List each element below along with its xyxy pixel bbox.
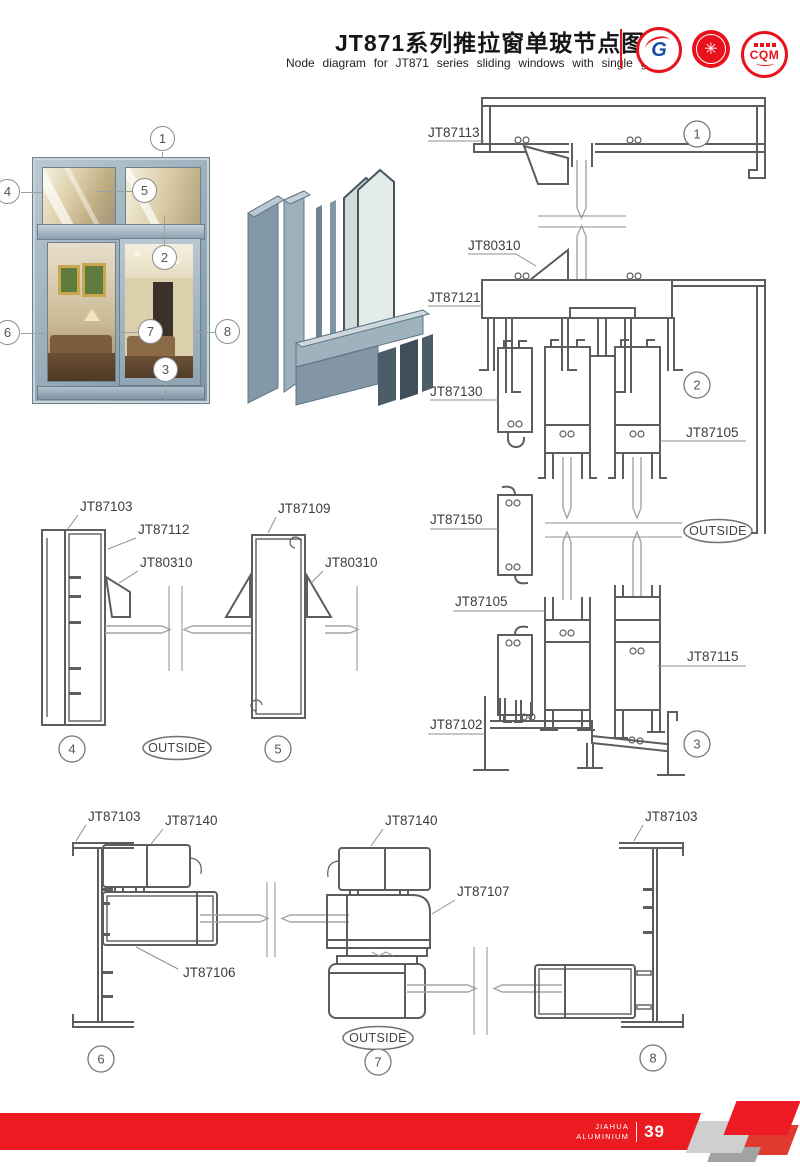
callout-line-8	[196, 332, 215, 333]
profile-jt87115	[611, 586, 664, 738]
node-number-5: 5	[274, 742, 281, 757]
callout-line-6	[21, 333, 48, 334]
jiahua-g-logo-icon: G	[636, 27, 682, 73]
callout-6: 6	[0, 320, 20, 345]
glazing-fin	[330, 200, 336, 347]
gasket-wedge-jt80310	[530, 250, 568, 280]
profile-jt87103-right-jamb	[620, 843, 683, 1027]
outside-label: OUTSIDE	[349, 1031, 407, 1045]
interlock-jt87107	[337, 948, 427, 964]
callout-line-5	[96, 191, 132, 192]
ceiling-light	[135, 252, 139, 256]
label-jt87121: JT87121	[428, 290, 481, 305]
callout-5: 5	[132, 178, 157, 203]
glass-pane-section1	[577, 160, 586, 280]
label-jt87140-a: JT87140	[165, 813, 218, 828]
profile-jt87113	[474, 98, 765, 178]
glass-pane-horizontal	[105, 626, 358, 633]
footer-brand-block: JIAHUA ALUMINIUM 39	[576, 1122, 665, 1142]
page-title: JT871系列推拉窗单玻节点图	[335, 24, 613, 58]
gasket-wedge-left	[226, 576, 250, 617]
profile-3d-render	[238, 148, 433, 423]
label-jt87140-b: JT87140	[385, 813, 438, 828]
profile-jt87150	[498, 487, 532, 584]
horizontal-section-45-diagram: JT87103 JT87112 JT80310 JT87109 JT80310 …	[20, 480, 420, 770]
label-jt87107: JT87107	[457, 884, 510, 899]
label-jt87130: JT87130	[430, 384, 483, 399]
profile-jt87109-mullion	[251, 535, 305, 718]
glazing-fin	[316, 205, 322, 351]
profile-jt87106-sash	[103, 892, 217, 945]
leader-jt87103-a	[76, 825, 86, 841]
callout-3: 3	[153, 357, 178, 382]
profile-lower-meeting-stile	[329, 964, 425, 1018]
callout-line-1	[162, 152, 163, 158]
picture-frame	[58, 265, 80, 295]
picture-frame	[82, 263, 106, 297]
outside-label: OUTSIDE	[148, 741, 206, 755]
label-jt87103: JT87103	[80, 499, 133, 514]
leader-jt87103	[67, 515, 78, 530]
footer-brand: JIAHUA ALUMINIUM	[576, 1122, 629, 1141]
footer-brand-line2: ALUMINIUM	[576, 1132, 629, 1141]
header-divider	[620, 29, 622, 68]
profile-jt87121	[482, 273, 765, 318]
cqm-text: CQM	[750, 49, 780, 61]
label-jt87103-a: JT87103	[88, 809, 141, 824]
callout-line-4	[21, 192, 42, 193]
outside-label: OUTSIDE	[689, 524, 747, 538]
callout-line-3	[165, 383, 166, 400]
window-photo: 1 4 5 2 6 7 8 3	[0, 120, 250, 420]
node-number-8: 8	[649, 1051, 656, 1066]
bottom-track	[400, 339, 418, 400]
label-jt87105-a: JT87105	[686, 425, 739, 440]
label-jt87105-b: JT87105	[455, 594, 508, 609]
cqm-logo-icon: CQM	[741, 31, 788, 78]
callout-1: 1	[150, 126, 175, 151]
profile-jt87103-jamb	[42, 530, 105, 725]
page-number: 39	[644, 1122, 665, 1142]
label-jt87106: JT87106	[183, 965, 236, 980]
lamp	[84, 309, 100, 321]
glass-pane-right-sash	[633, 457, 641, 598]
label-jt87109: JT87109	[278, 501, 331, 516]
seal-flower-icon: ✳	[696, 34, 726, 64]
break-lines	[169, 586, 357, 671]
leader-jt80310	[468, 254, 536, 266]
top-left-pane	[42, 167, 116, 225]
label-jt87103-b: JT87103	[645, 809, 698, 824]
leader-jt87107	[432, 900, 455, 914]
bottom-track	[378, 347, 396, 406]
leader-jt87140-a	[151, 829, 163, 844]
footer-brand-line1: JIAHUA	[576, 1122, 629, 1131]
node-number-1: 1	[693, 127, 700, 142]
label-jt87113: JT87113	[428, 125, 480, 140]
callout-line-2	[164, 215, 165, 245]
logo-swoosh-icon	[643, 33, 673, 56]
footer-divider	[636, 1122, 637, 1142]
catalog-page: JT871系列推拉窗单玻节点图 Node diagram for JT871 s…	[0, 0, 800, 1167]
gasket-wedge-jt80310	[106, 577, 130, 617]
callout-line-7	[118, 332, 138, 333]
vertical-section-diagram: JT87113 1 JT80310 JT87121 JT87130 2 JT87…	[420, 90, 800, 800]
profile-jt87102-sill	[474, 697, 684, 775]
profile-jt87140-a	[103, 845, 201, 892]
leader-jt87109	[268, 517, 276, 533]
label-jt87112: JT87112	[138, 522, 190, 537]
page-subtitle: Node diagram for JT871 series sliding wi…	[286, 56, 612, 70]
node-number-2: 2	[693, 378, 700, 393]
leader-jt80310-b	[311, 571, 323, 583]
gasket-wedge-right	[307, 576, 331, 617]
leader-jt80310-a	[119, 571, 138, 583]
cqm-arc	[756, 61, 774, 66]
window-bottom-rail	[37, 386, 205, 400]
horizontal-section-678-diagram: JT87103 JT87140 JT87140 JT87103 JT87107 …	[40, 795, 780, 1075]
label-jt87102: JT87102	[430, 717, 483, 732]
glass-pane-front	[358, 170, 394, 338]
break-lines	[267, 882, 275, 957]
label-jt80310-b: JT80310	[325, 555, 378, 570]
leader-jt87103-b	[634, 825, 643, 841]
node-number-4: 4	[68, 742, 75, 757]
node-number-6: 6	[97, 1052, 104, 1067]
node-number-7: 7	[374, 1055, 381, 1070]
node-number-3: 3	[693, 737, 700, 752]
label-jt80310-a: JT80310	[140, 555, 193, 570]
floor	[48, 353, 115, 381]
callout-8: 8	[215, 319, 240, 344]
leader-jt87140-b	[371, 829, 383, 846]
callout-7: 7	[138, 319, 163, 344]
label-jt87150: JT87150	[430, 512, 483, 527]
profile-jt87140-b	[328, 848, 430, 895]
label-jt87115: JT87115	[687, 649, 739, 664]
callout-2: 2	[152, 245, 177, 270]
label-jt80310: JT80310	[468, 238, 521, 253]
callout-4: 4	[0, 179, 20, 204]
footer-band: JIAHUA ALUMINIUM 39	[0, 1113, 701, 1150]
footer-shape-red-big	[723, 1101, 800, 1135]
leader-jt87106	[136, 947, 178, 969]
profile-jt87130	[498, 341, 532, 447]
glass-pane-left-sash	[563, 457, 571, 600]
aluminum-slab	[248, 196, 278, 403]
profile-sash-top-right-jt87105	[609, 340, 666, 478]
certification-seal-icon: ✳	[692, 30, 730, 68]
leader-jt87112	[108, 538, 136, 549]
bottom-left-pane	[47, 242, 116, 382]
window-frame	[32, 157, 210, 404]
break-lines	[474, 947, 487, 1035]
profile-sash-bottom-left	[541, 598, 594, 730]
